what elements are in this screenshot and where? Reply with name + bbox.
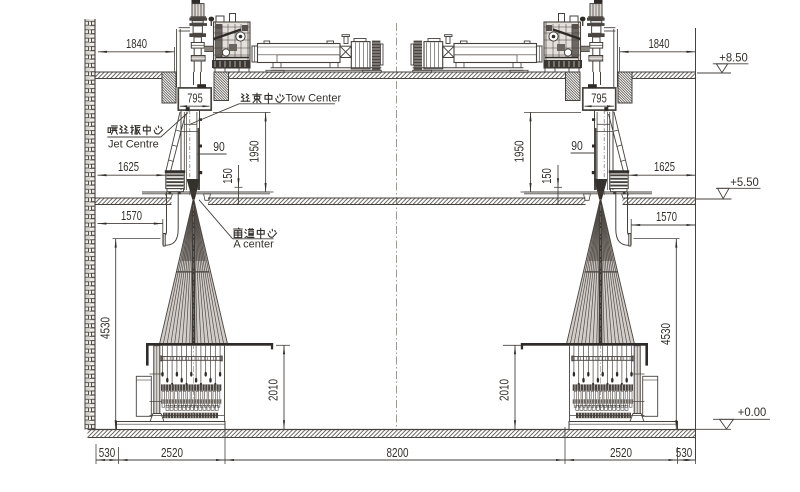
svg-text:530: 530 <box>676 446 693 460</box>
svg-text:Tow Center: Tow Center <box>286 93 342 105</box>
svg-text:1625: 1625 <box>654 160 675 174</box>
svg-text:8200: 8200 <box>387 446 409 460</box>
svg-text:+8.50: +8.50 <box>719 51 748 65</box>
svg-text:2520: 2520 <box>610 446 632 460</box>
svg-text:1840: 1840 <box>126 37 147 51</box>
svg-text:1840: 1840 <box>649 37 670 51</box>
svg-text:2010: 2010 <box>267 379 281 401</box>
svg-text:1950: 1950 <box>513 140 527 162</box>
svg-text:+5.50: +5.50 <box>730 175 759 189</box>
svg-text:2520: 2520 <box>161 446 183 460</box>
svg-text:150: 150 <box>221 168 235 184</box>
svg-text:795: 795 <box>591 92 607 106</box>
svg-text:+0.00: +0.00 <box>738 405 767 419</box>
svg-text:90: 90 <box>571 139 583 153</box>
svg-text:4530: 4530 <box>99 317 113 339</box>
svg-text:1950: 1950 <box>248 140 262 162</box>
svg-text:2010: 2010 <box>498 379 512 401</box>
svg-text:150: 150 <box>540 168 554 184</box>
svg-text:A center: A center <box>233 239 274 251</box>
svg-text:4530: 4530 <box>659 323 673 345</box>
svg-text:1570: 1570 <box>121 209 142 223</box>
svg-text:90: 90 <box>213 140 225 154</box>
svg-text:530: 530 <box>99 446 116 460</box>
svg-text:1570: 1570 <box>656 210 677 224</box>
svg-text:Jet Centre: Jet Centre <box>108 139 159 151</box>
svg-text:795: 795 <box>187 92 203 106</box>
svg-text:1625: 1625 <box>118 160 139 174</box>
